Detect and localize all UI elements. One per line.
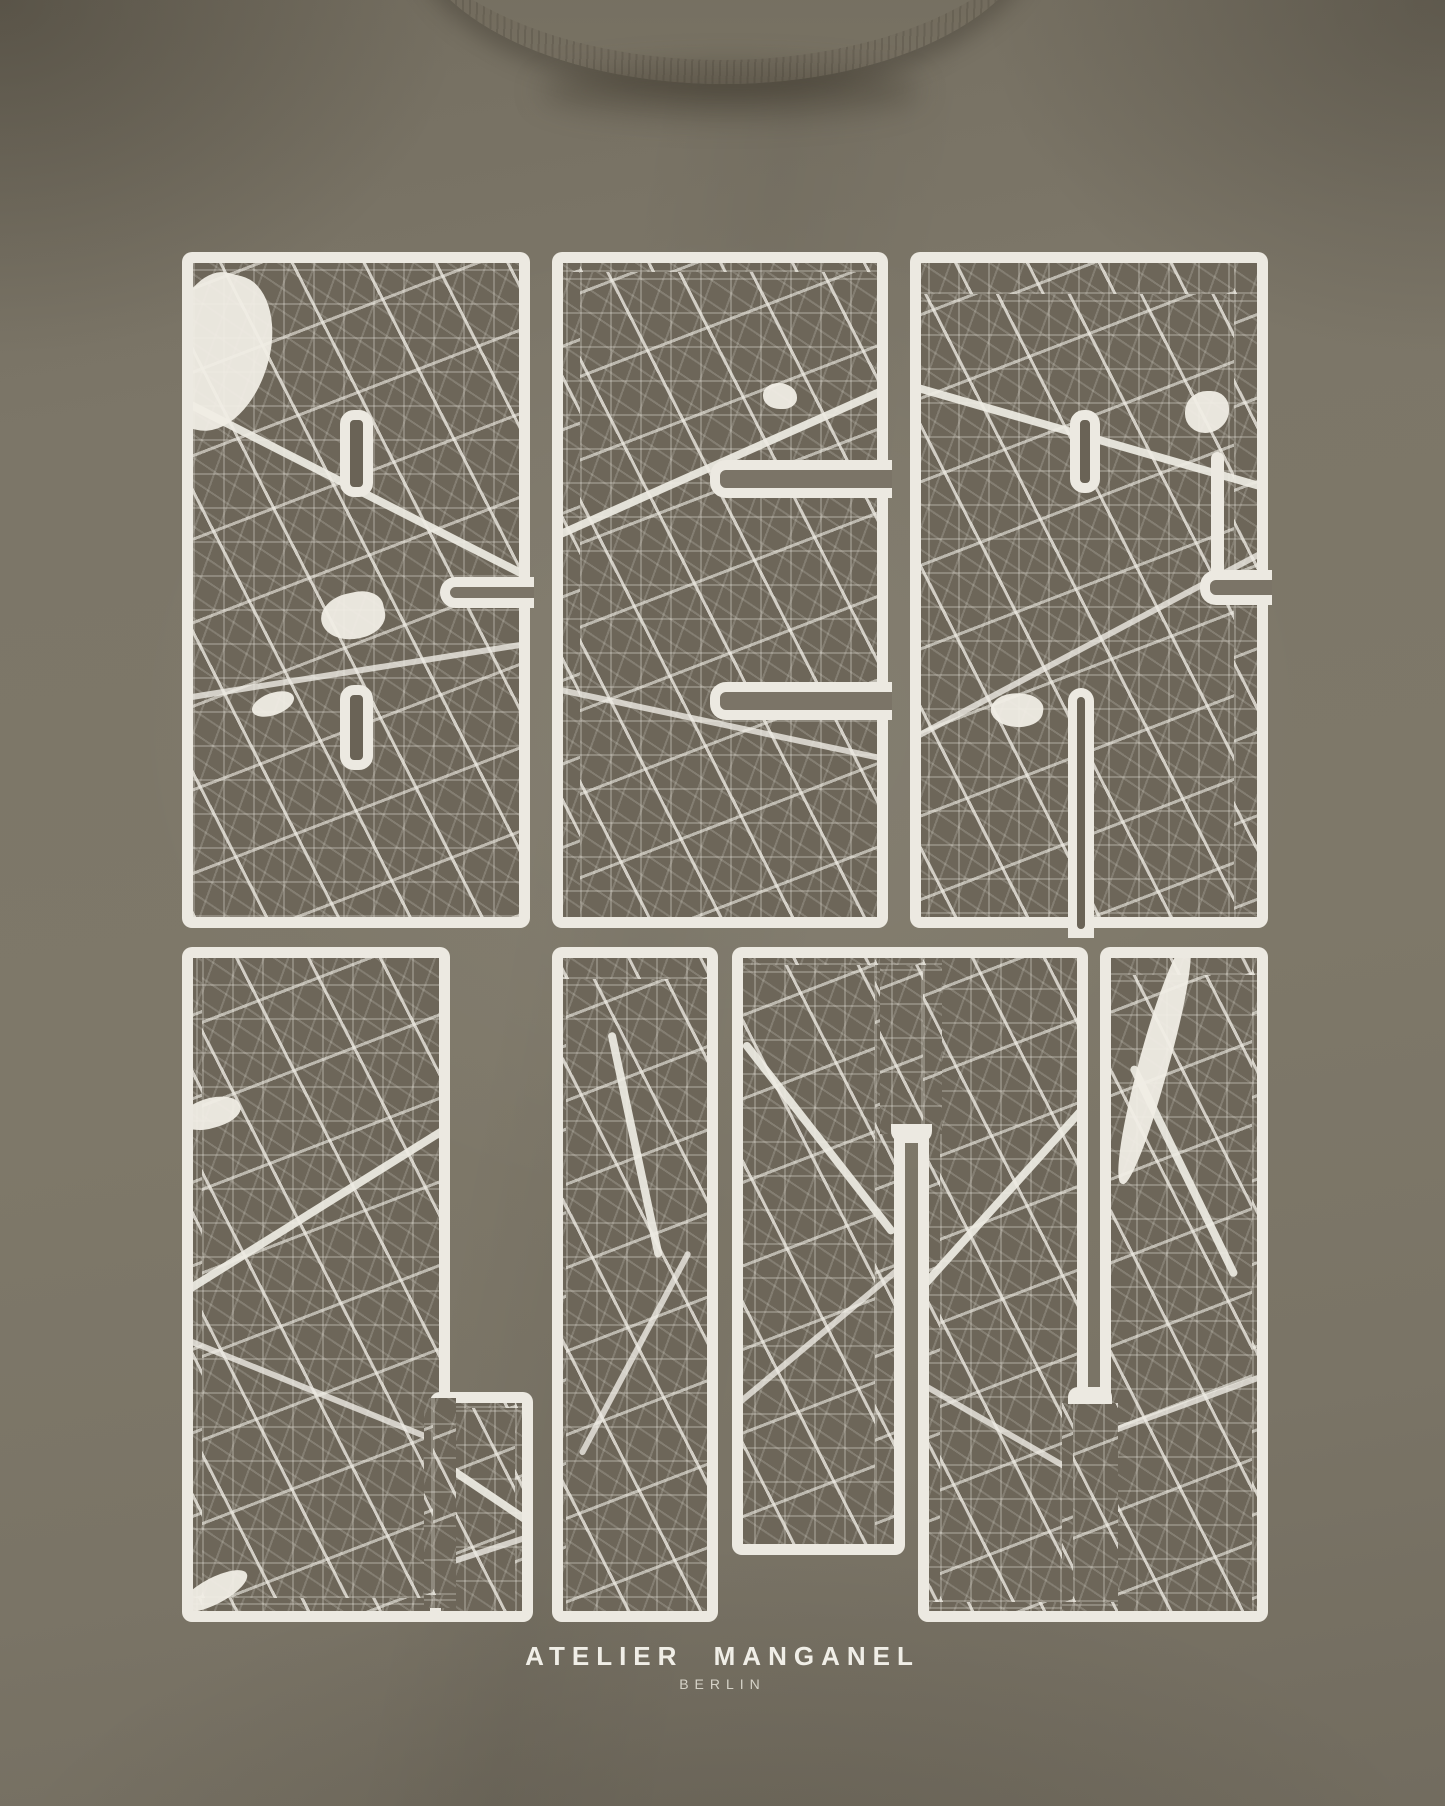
letter-n-join-top-border <box>880 947 942 958</box>
letter-n-slit-left-cap <box>891 1124 932 1143</box>
pond-shape <box>182 1089 244 1136</box>
letter-e-notch-bottom <box>710 682 892 720</box>
brand-city: BERLIN <box>0 1676 1445 1692</box>
letter-b-counter-bottom <box>340 685 373 770</box>
letter-panel-i <box>552 947 718 1622</box>
letter-e-notch-top <box>710 460 892 498</box>
letter-r-mid-notch <box>1200 570 1272 605</box>
letter-n-join-bottom <box>1062 1403 1118 1611</box>
letter-n-slit-right-cap <box>1068 1387 1112 1404</box>
brand-name: ATELIER MANGANEL <box>0 1641 1445 1672</box>
letter-b-waist-notch <box>440 577 534 608</box>
letter-panel-l-stem <box>182 947 450 1622</box>
letter-r-bowl-line <box>1211 452 1224 588</box>
letter-panel-e <box>552 252 888 928</box>
letter-b-counter-top <box>340 410 373 497</box>
tshirt-photo: ATELIER MANGANEL BERLIN <box>0 0 1445 1806</box>
park-shape <box>763 383 797 409</box>
letter-l-join <box>424 1398 456 1608</box>
letter-r-leg-slit-core <box>1077 697 1085 929</box>
lake-shape <box>1185 391 1229 433</box>
letter-r-counter <box>1070 410 1100 493</box>
lake-shape <box>182 263 287 442</box>
letter-n-join-top <box>880 958 942 1134</box>
pond-shape <box>989 690 1045 731</box>
letter-panel-n-right <box>1100 947 1268 1622</box>
pond-shape <box>317 587 389 645</box>
brand-lockup: ATELIER MANGANEL BERLIN <box>0 1641 1445 1692</box>
collar-shadow <box>540 64 920 118</box>
letter-n-join-bottom-border <box>1062 1611 1118 1622</box>
pond-shape <box>249 686 298 722</box>
river-shape <box>1105 947 1203 1187</box>
pond-shape <box>182 1562 253 1620</box>
